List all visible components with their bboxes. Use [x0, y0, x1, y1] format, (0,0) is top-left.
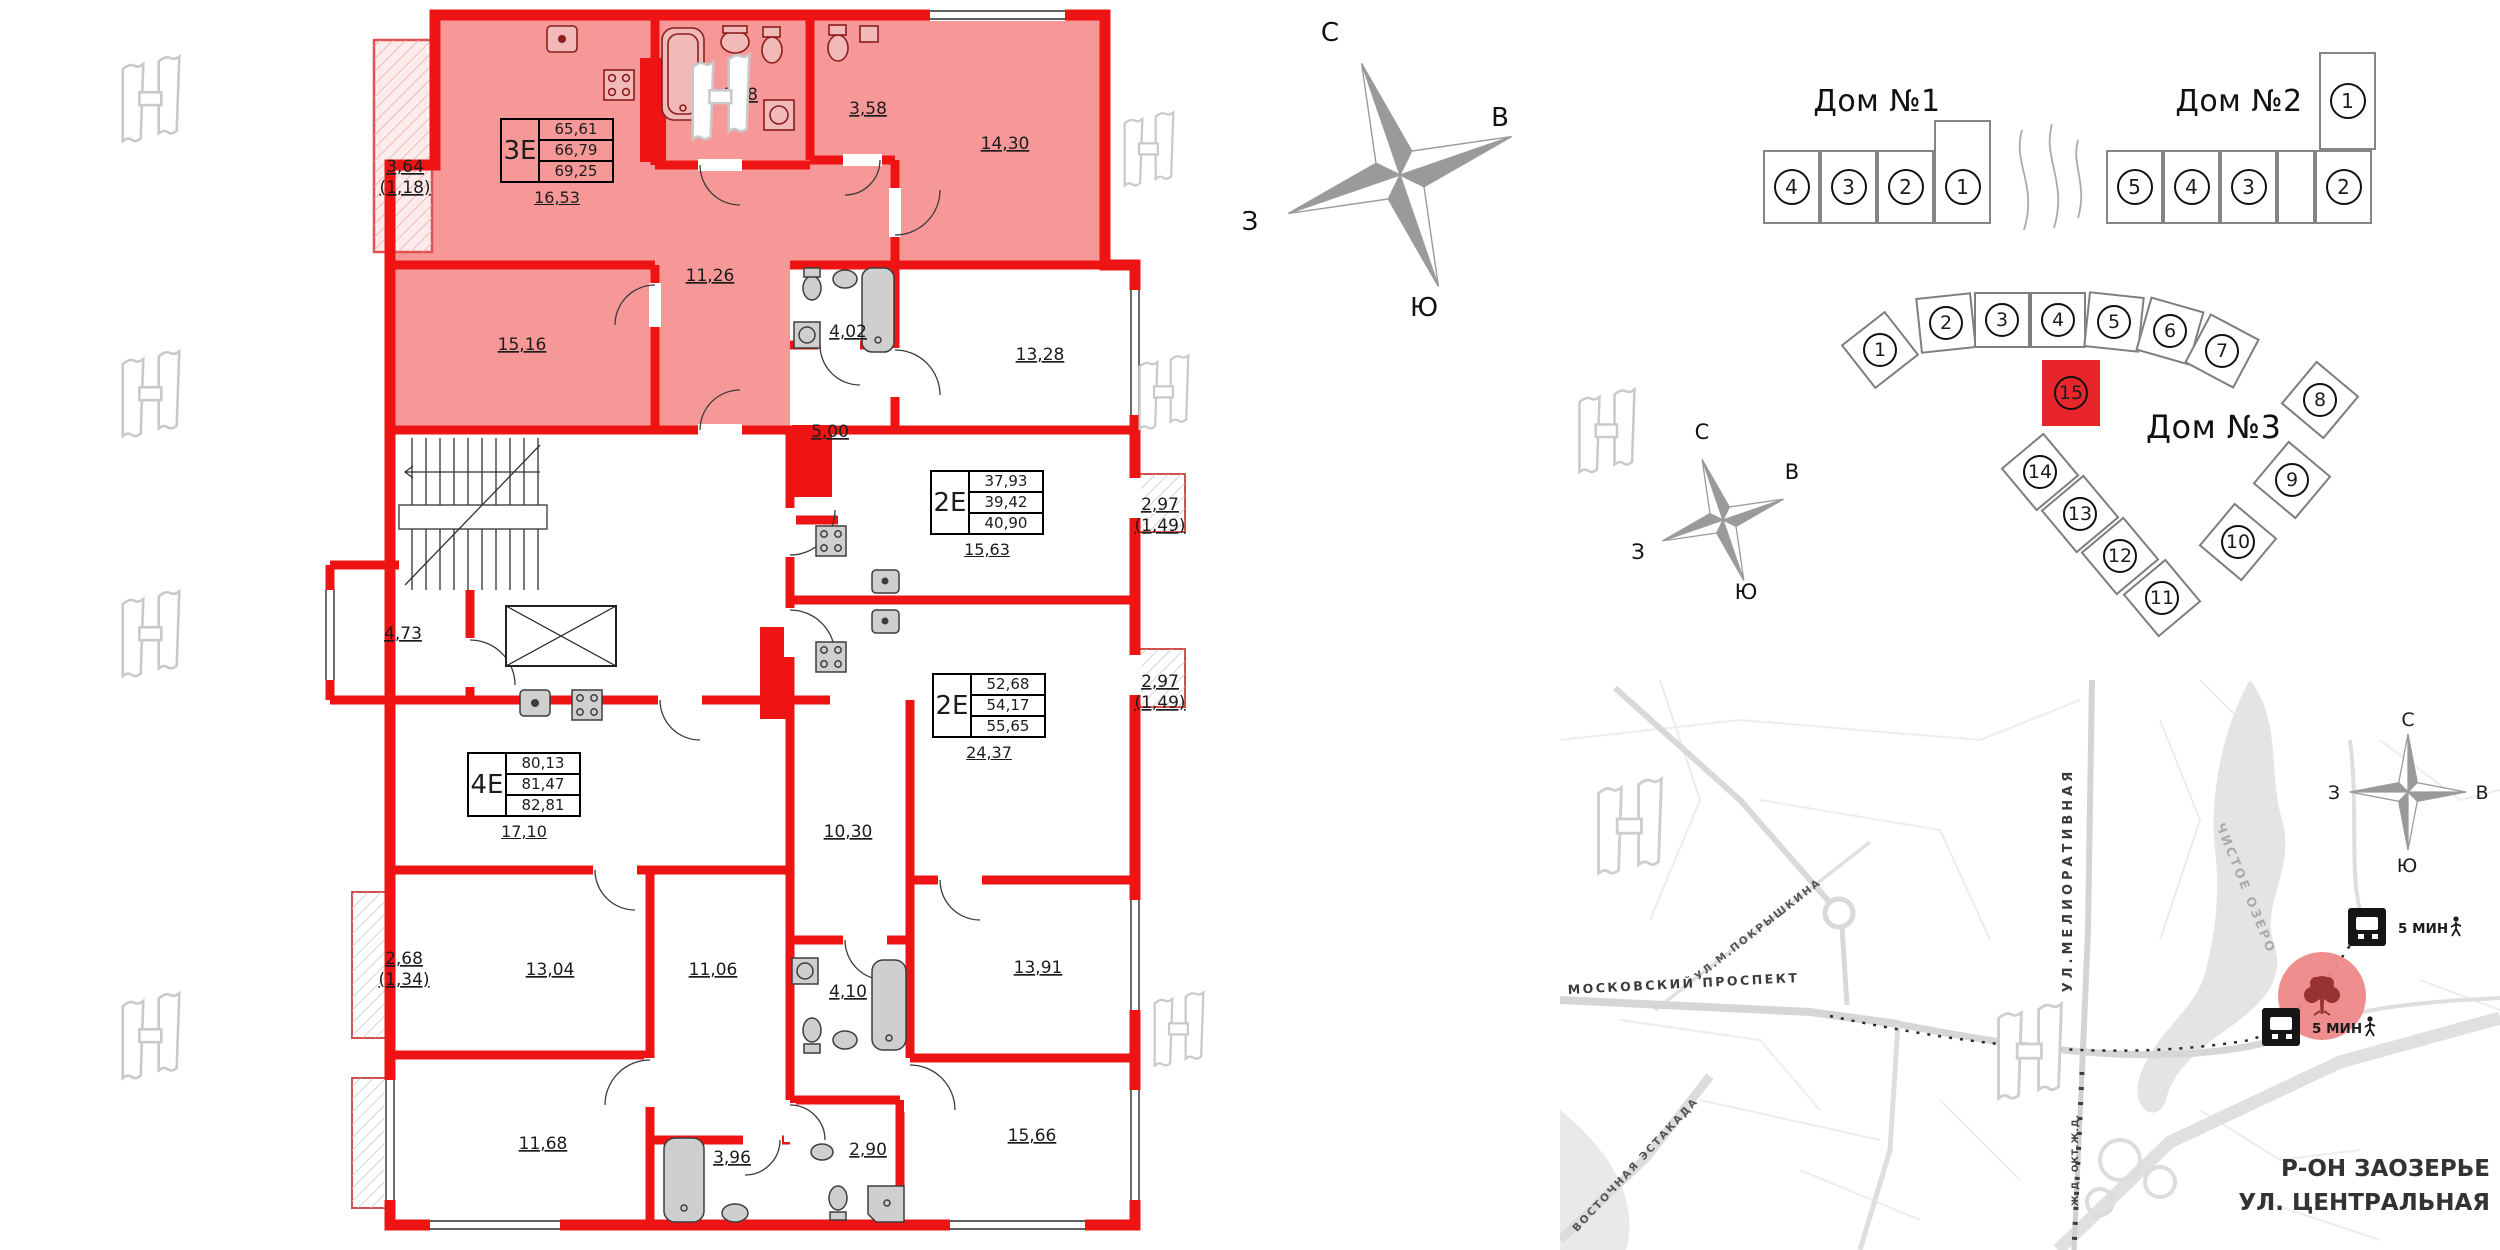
section-number: 3 [2231, 169, 2267, 205]
floor-plan: 3,64 (1,18) 4,78 3,58 14,30 11,26 15,16 … [0, 0, 1250, 1250]
room-area-label: 13,28 [1016, 345, 1065, 365]
compass-north-label: С [1695, 420, 1710, 444]
room-area-label: 15,16 [498, 335, 547, 355]
river-between-buildings [1994, 122, 2104, 234]
dom1-title: Дом №1 [1813, 84, 1940, 119]
room-area-label: 2,90 [849, 1140, 887, 1160]
compass-south-label: Ю [1410, 293, 1438, 323]
section-number: 6 [2153, 314, 2187, 348]
section-number: 1 [1945, 169, 1981, 205]
compass-west-label: З [2328, 782, 2340, 804]
room-area-label: 15,66 [1008, 1126, 1057, 1146]
apartment-table: 3Е 65,61 66,79 69,25 [500, 118, 614, 183]
apartment-table: 4Е 80,13 81,47 82,81 [467, 752, 581, 817]
dom3-section-15-highlighted[interactable]: 15 [2042, 360, 2100, 426]
room-area-label: 3,96 [713, 1148, 751, 1168]
room-area-label: 11,26 [686, 266, 735, 286]
compass-rose-dom3 [1648, 445, 1798, 595]
apartment-type: 2Е [932, 472, 970, 533]
dom3-section-3[interactable]: 3 [1974, 292, 2030, 348]
dom2-section-1[interactable]: 1 [2319, 52, 2376, 150]
apartment-area: 39,42 [970, 493, 1042, 514]
room-area-label: 2,97 [1141, 672, 1179, 692]
page: 3,64 (1,18) 4,78 3,58 14,30 11,26 15,16 … [0, 0, 2500, 1250]
section-number: 3 [1831, 169, 1867, 205]
room-area-label: 3,58 [849, 99, 887, 119]
room-area-label: 4,10 [829, 982, 867, 1002]
apartment-room-area: 24,37 [966, 743, 1012, 762]
compass-east-label: В [2475, 782, 2488, 804]
compass-north-label: С [1321, 18, 1339, 48]
room-area-label: 13,91 [1014, 958, 1063, 978]
room-area-label: 2,97 [1141, 495, 1179, 515]
compass-rose-main [1255, 30, 1545, 320]
dom3-title: Дом №3 [2146, 408, 2282, 446]
room-area-label: 5,00 [811, 422, 849, 442]
apartment-area: 54,17 [972, 696, 1044, 717]
room-area-label: 10,30 [824, 822, 873, 842]
section-number: 3 [1985, 303, 2019, 337]
street-label-meliorativnaya: УЛ.МЕЛИОРАТИВНАЯ [2061, 768, 2076, 993]
compass-south-label: Ю [2397, 855, 2418, 877]
section-number: 5 [2117, 169, 2153, 205]
dom1-section-2[interactable]: 2 [1877, 150, 1934, 224]
location-map: 5 МИН 5 МИН МОСКОВСКИЙ ПРОСПЕКТ УЛ.МЕЛИО… [1560, 680, 2500, 1250]
dom3-section-2[interactable]: 2 [1915, 292, 1977, 354]
apartment-type: 4Е [469, 754, 507, 815]
dom2-section-4[interactable]: 4 [2163, 150, 2220, 224]
dom3-section-4[interactable]: 4 [2030, 292, 2086, 348]
apartment-table: 2Е 37,93 39,42 40,90 [930, 470, 1044, 535]
section-number: 9 [2275, 463, 2309, 497]
room-area-label: (1,49) [1134, 516, 1185, 536]
stairs [399, 438, 547, 590]
section-number: 11 [2145, 581, 2179, 615]
dom3-section-9[interactable]: 9 [2253, 441, 2332, 520]
apartment-area: 82,81 [507, 796, 579, 815]
compass-east-label: В [1491, 103, 1509, 133]
district-line1: Р-ОН ЗАОЗЕРЬЕ [2281, 1156, 2490, 1182]
railway-label: Ж.Д. ОКТ.Ж.Д. [2071, 1114, 2081, 1206]
apartment-room-area: 15,63 [964, 540, 1010, 559]
room-area-label: 3,64 [386, 157, 424, 177]
section-number: 13 [2063, 497, 2097, 531]
apartment-area: 55,65 [972, 717, 1044, 736]
section-number: 4 [2174, 169, 2210, 205]
compass-east-label: В [1785, 460, 1799, 484]
compass-west-label: З [1631, 540, 1644, 564]
apartment-area: 37,93 [970, 472, 1042, 493]
compass-north-label: С [2401, 709, 2414, 731]
compass-south-label: Ю [1735, 580, 1758, 604]
apartment-area: 69,25 [540, 162, 612, 181]
apartment-area: 80,13 [507, 754, 579, 775]
apartment-area: 40,90 [970, 514, 1042, 533]
section-number: 10 [2221, 525, 2255, 559]
apartment-room-area: 17,10 [501, 822, 547, 841]
walk-time-label: 5 МИН [2312, 1021, 2362, 1037]
section-number: 15 [2054, 376, 2088, 410]
dom2-connector [2277, 150, 2315, 224]
compass-west-label: З [1242, 207, 1259, 237]
dom2-section-3[interactable]: 3 [2220, 150, 2277, 224]
apartment-card-2e-1[interactable]: 2Е 37,93 39,42 40,90 15,63 [930, 470, 1044, 559]
room-area-label: (1,18) [379, 178, 430, 198]
dom2-section-2[interactable]: 2 [2315, 150, 2372, 224]
pn-watermark [1572, 382, 1642, 482]
section-number: 2 [2326, 169, 2362, 205]
section-number: 2 [1929, 306, 1963, 340]
section-number: 4 [2041, 303, 2075, 337]
room-area-label: (1,49) [1134, 693, 1185, 713]
dom1-section-1[interactable]: 1 [1934, 120, 1991, 224]
section-number: 2 [1888, 169, 1924, 205]
room-area-label: (1,34) [378, 970, 429, 990]
apartment-area: 81,47 [507, 775, 579, 796]
section-number: 1 [1863, 333, 1897, 367]
apartment-room-area: 16,53 [534, 188, 580, 207]
room-area-label: 2,68 [385, 949, 423, 969]
section-number: 7 [2205, 334, 2239, 368]
walk-time-label: 5 МИН [2398, 921, 2448, 937]
dom3-section-1[interactable]: 1 [1841, 311, 1920, 390]
apartment-area: 52,68 [972, 675, 1044, 696]
apartment-area: 66,79 [540, 141, 612, 162]
room-area-label: 11,68 [519, 1134, 568, 1154]
apartment-type: 2Е [934, 675, 972, 736]
section-number: 12 [2103, 539, 2137, 573]
dom3-section-10[interactable]: 10 [2199, 503, 2278, 582]
section-number: 1 [2330, 83, 2366, 119]
elevator [506, 606, 616, 666]
section-number: 14 [2023, 455, 2057, 489]
dom1-section-3[interactable]: 3 [1820, 150, 1877, 224]
apartment-card-4e[interactable]: 4Е 80,13 81,47 82,81 17,10 [467, 752, 581, 841]
dom1-section-4[interactable]: 4 [1763, 150, 1820, 224]
room-area-label: 4,02 [829, 322, 867, 342]
dom2-title: Дом №2 [2175, 84, 2302, 119]
section-number: 5 [2097, 305, 2131, 339]
dom2-section-5[interactable]: 5 [2106, 150, 2163, 224]
dom3-section-5[interactable]: 5 [2083, 291, 2145, 353]
apartment-table: 2Е 52,68 54,17 55,65 [932, 673, 1046, 738]
apartment-area: 65,61 [540, 120, 612, 141]
district-line2: УЛ. ЦЕНТРАЛЬНАЯ [2238, 1190, 2490, 1216]
room-area-label: 14,30 [981, 134, 1030, 154]
apartment-card-3e[interactable]: 3Е 65,61 66,79 69,25 16,53 [500, 118, 614, 207]
section-number: 8 [2303, 383, 2337, 417]
apartment-type: 3Е [502, 120, 540, 181]
room-area-label: 4,73 [384, 624, 422, 644]
apartment-card-2e-2[interactable]: 2Е 52,68 54,17 55,65 24,37 [932, 673, 1046, 762]
section-number: 4 [1774, 169, 1810, 205]
room-area-label: 13,04 [526, 960, 575, 980]
room-area-label: 11,06 [689, 960, 738, 980]
dom3-section-8[interactable]: 8 [2281, 361, 2360, 440]
